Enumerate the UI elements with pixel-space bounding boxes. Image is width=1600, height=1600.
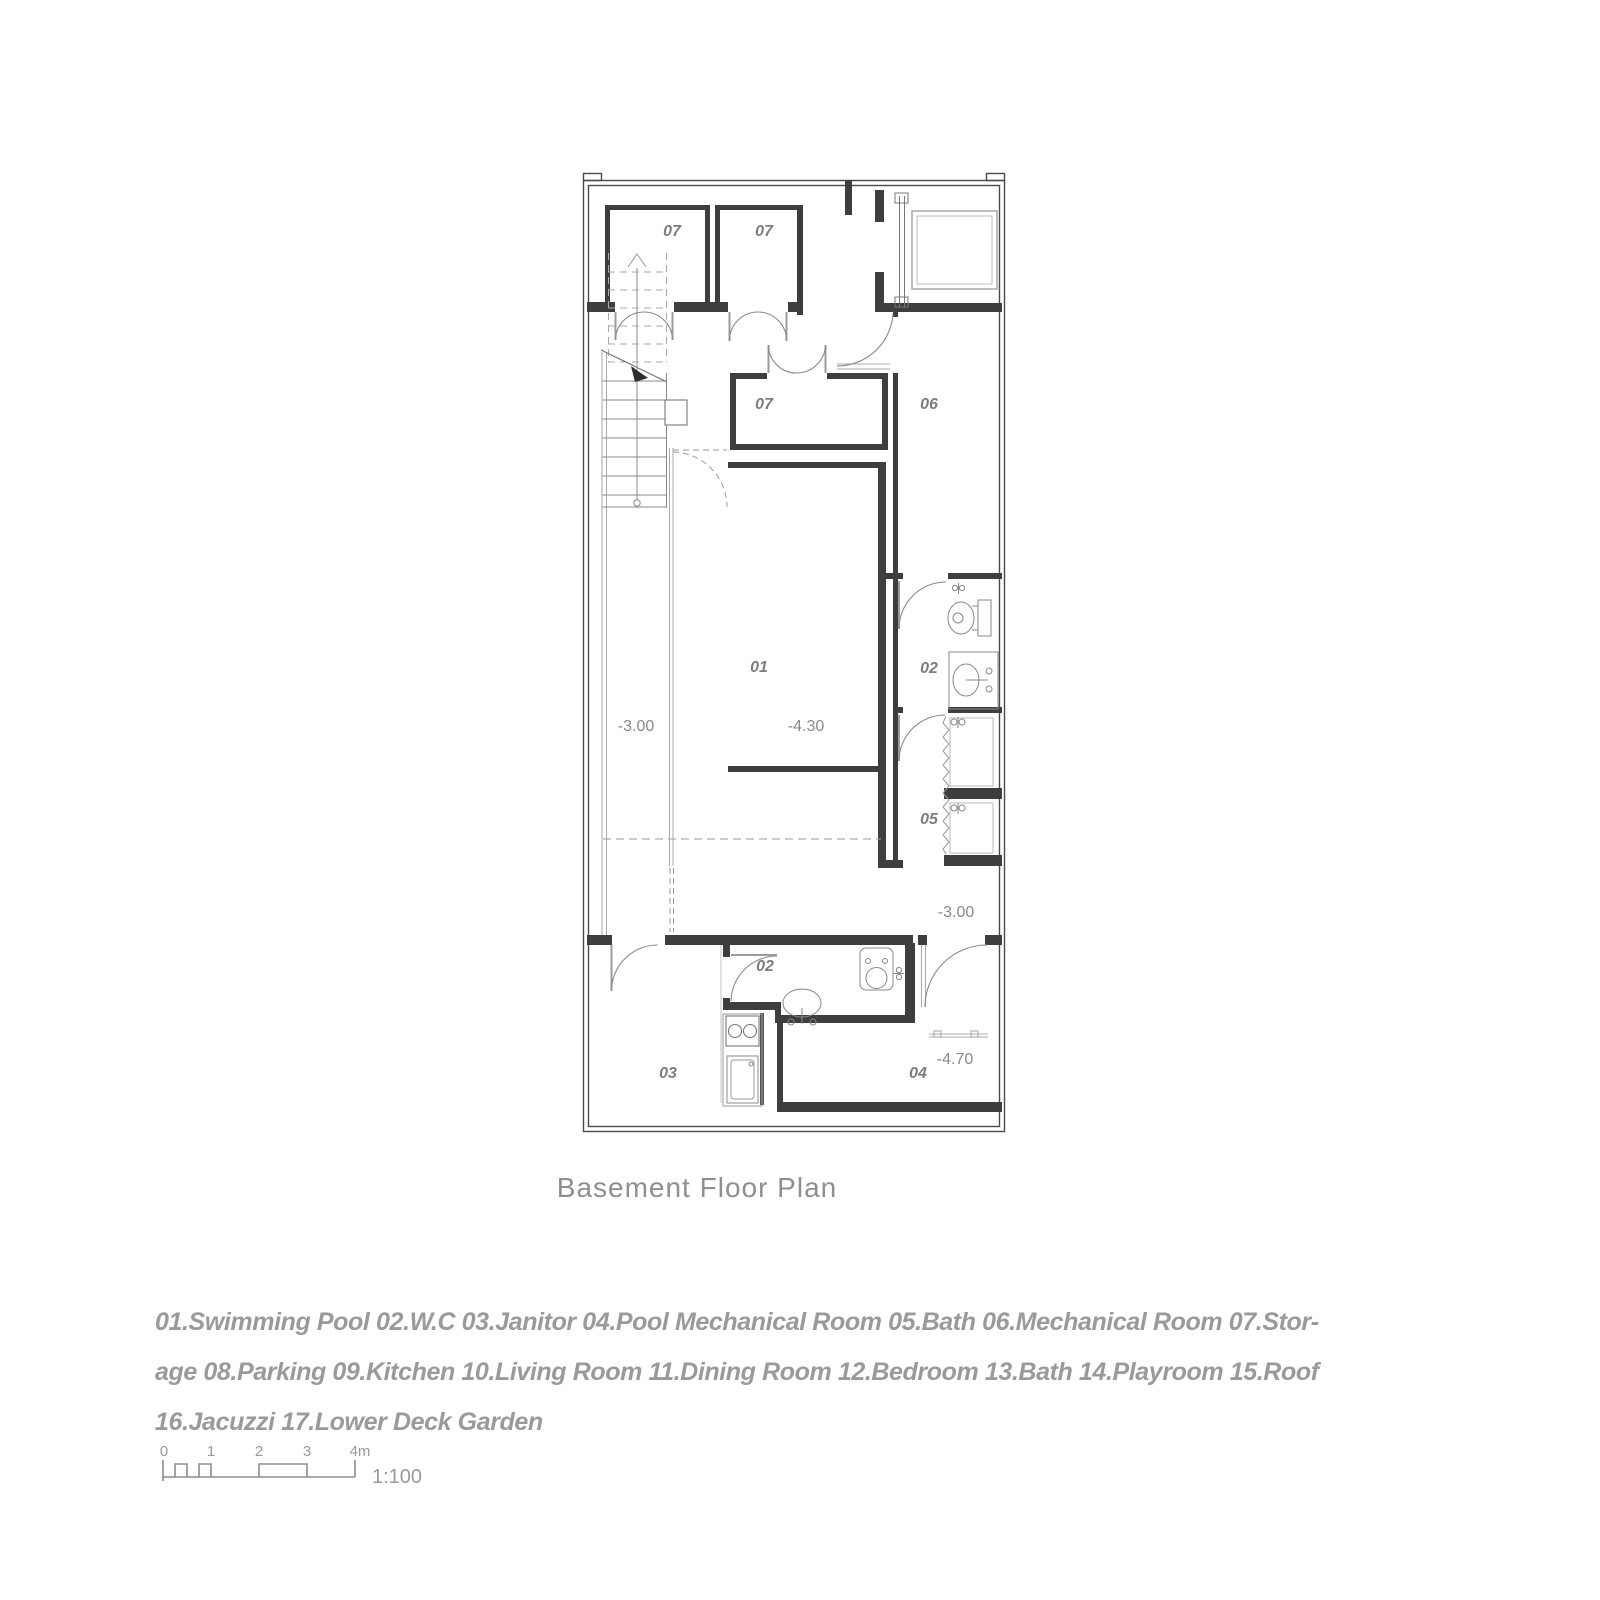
interior-walls <box>587 180 1002 1112</box>
toilet-icon <box>948 600 991 636</box>
shower-icon <box>950 718 993 853</box>
sink-lower-icon <box>783 989 821 1025</box>
stair-up-arrow-icon <box>628 254 646 267</box>
kitchenette <box>723 1014 762 1106</box>
room-label-wc-lower: 02 <box>756 958 774 975</box>
legend-line-3: 16.Jacuzzi 17.Lower Deck Garden <box>155 1397 1495 1447</box>
floor-plan-sheet: 07 07 07 06 01 02 05 02 03 04 -3.00 -4.3… <box>0 0 1600 1600</box>
stair <box>601 253 687 935</box>
room-label-pool: 01 <box>750 659 768 676</box>
outer-wall <box>584 174 1005 1132</box>
room-label-storage-2: 07 <box>755 223 774 240</box>
room-legend: 01.Swimming Pool 02.W.C 03.Janitor 04.Po… <box>155 1297 1495 1447</box>
room-label-mechanical: 06 <box>920 396 938 413</box>
scale-ratio: 1:100 <box>372 1466 422 1488</box>
shower-faucet-icon <box>951 717 965 814</box>
toilet-lower-icon <box>860 948 893 990</box>
room-label-storage-1: 07 <box>663 223 682 240</box>
stove-icon <box>726 1016 759 1046</box>
elevator <box>895 193 997 307</box>
wall-faucet-icon <box>894 967 904 979</box>
scale-bar: 0 1 2 3 4m 1:100 <box>160 1443 422 1488</box>
step-threshold <box>929 1031 988 1037</box>
room-label-storage-3: 07 <box>755 396 774 413</box>
room-label-bath: 05 <box>920 811 939 828</box>
page-title: Basement Floor Plan <box>497 1172 897 1204</box>
kitchen-sink-icon <box>727 1056 758 1103</box>
level-label-corridor: -3.00 <box>618 718 655 735</box>
room-label-janitor: 03 <box>659 1065 677 1082</box>
shower-curtain-zigzag <box>943 716 949 854</box>
level-label-pool: -4.30 <box>788 718 825 735</box>
level-label-pool-mech: -4.70 <box>937 1051 974 1068</box>
sink-icon <box>949 652 998 709</box>
level-label-deck: -3.00 <box>938 904 975 921</box>
legend-line-1: 01.Swimming Pool 02.W.C 03.Janitor 04.Po… <box>155 1297 1495 1347</box>
legend-line-2: age 08.Parking 09.Kitchen 10.Living Room… <box>155 1347 1495 1397</box>
room-label-wc-upper: 02 <box>920 660 938 677</box>
room-label-pool-mech: 04 <box>909 1065 927 1082</box>
faucet-icon <box>952 583 964 594</box>
elevator-car <box>912 211 997 289</box>
